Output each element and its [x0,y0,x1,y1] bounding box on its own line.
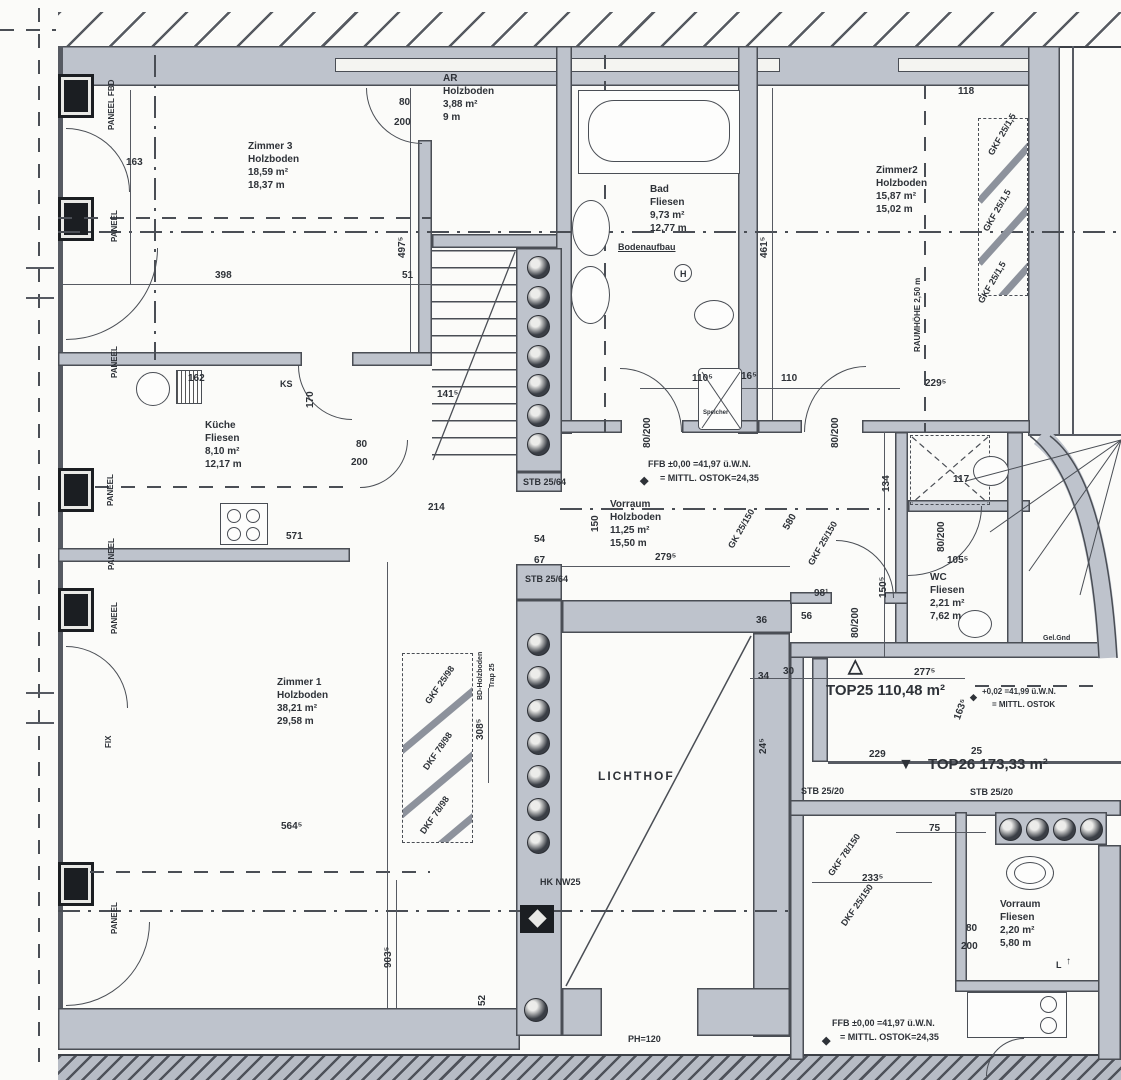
tag-stb2564-b: STB 25/64 [525,574,568,584]
room-label-zimmer2: Zimmer2Holzboden15,87 m²15,02 m [876,164,927,216]
dim-461-5: 461⁵ [760,237,770,258]
dim-134: 134 [882,475,892,492]
dim-170: 170 [306,391,316,408]
facade-pillar [58,74,94,118]
dim-398: 398 [215,271,232,281]
wall-unit-divider [790,655,804,1060]
shaft-circle-lower [527,666,550,689]
wall-wc-left [895,432,908,657]
dim-16-5: 16⁵ [741,372,757,382]
dim-580: 580 [782,513,799,532]
sink-shower-room [973,456,1009,486]
stove-burner [246,509,260,523]
tag-gk25150: GK 25/150 [726,507,756,550]
room-label-line: AR [443,72,494,85]
washing-machine-inner [1014,862,1046,884]
wall-br-kitchen-top [955,980,1121,992]
tag-stb2520-a: STB 25/20 [801,786,844,796]
toilet-bad [694,300,734,330]
wall-zimmer2-bottom [862,420,1030,433]
ann-hk: HK NW25 [540,877,581,887]
room-label-ar: ARHolzboden3,88 m²9 m [443,72,494,124]
ann-trap25: Trap 25 [488,663,498,688]
floor-plan-canvas: 16339851497⁵141⁵162170571118229⁵110⁵16⁵1… [0,0,1121,1080]
lvl-ostok-br: = MITTL. OSTOK=24,35 [840,1032,939,1042]
dim-36: 36 [756,616,767,626]
shaft-circle-lower [527,633,550,656]
room-label-line: 8,10 m² [205,445,242,458]
dim-line [488,688,489,783]
room-label-line: Vorraum [1000,898,1040,911]
room-label-line: Fliesen [1000,911,1040,924]
ann-bd-holzboden: BD-Holzboden [476,652,486,700]
room-label-wc: WCFliesen2,21 m²7,62 m [930,571,964,623]
wall-br-right [1098,845,1121,1060]
door-ar-200: 200 [394,118,411,128]
door-kue-80: 80 [356,440,367,450]
lvl-ffb-mid: FFB ±0,00 =41,97 ü.W.N. [648,459,751,469]
dim-308-5: 308⁵ [476,719,486,740]
wall-br-vertical [955,812,967,988]
door-br-200: 200 [961,942,978,952]
room-label-line: 2,20 m² [1000,924,1040,937]
room-label-line: 11,25 m² [610,524,661,537]
ann-paneel-1: PANEEL [110,210,120,242]
dashline-kueche [95,486,345,488]
room-label-line: 29,58 m [277,715,328,728]
dim-75: 75 [929,824,940,834]
room-label-line: 5,80 m [1000,937,1040,950]
dim-903-5: 903⁵ [384,947,394,968]
shaft-circle-lower [527,732,550,755]
room-label-line: Zimmer 1 [277,676,328,689]
top-boundary-hatch [58,12,1121,48]
dim-229-5: 229⁵ [925,379,946,389]
refline-zimmer1 [387,562,388,1008]
room-label-line: 38,21 m² [277,702,328,715]
dim-line [750,678,965,679]
centerline-zimmer1 [58,910,788,912]
ann-l-arrow: ↑ [1066,957,1071,967]
room-label-line: 7,62 m [930,610,964,623]
dim-56: 56 [801,612,812,622]
tag-gkf25150: GKF 25/150 [806,520,839,567]
wall-zimmer3-bottom [352,352,432,366]
door-arc-facade-4 [66,922,150,1006]
ann-speicher: Speicher [703,408,728,418]
dim-150: 150 [591,515,601,532]
sink-bad-2 [571,266,610,324]
wall-zimmer3-bottom [58,352,302,366]
room-label-line: Fliesen [930,584,964,597]
top-margin-line [0,29,56,31]
dim-163: 163 [126,158,143,168]
ann-gelgnd: Gel.Gnd [1043,634,1070,644]
dim-52: 52 [478,995,488,1006]
margin-tick [26,692,54,694]
stove-burner [246,527,260,541]
room-label-line: 18,59 m² [248,166,299,179]
room-label-line: Bad [650,183,687,196]
lichthof-wall-right [753,633,790,1037]
margin-tick [26,297,54,299]
room-label-line: 12,17 m [205,458,242,471]
facade-pillar [58,862,94,906]
stove-burner [227,509,241,523]
door-arc-facade-2 [66,248,158,340]
dim-214: 214 [428,503,445,513]
lvl-marker-tr: ◆ [970,692,977,702]
room-label-line: Holzboden [248,153,299,166]
stove-burner-br [1040,1017,1057,1034]
room-label-line: Holzboden [277,689,328,702]
room-label-vorraum: VorraumHolzboden11,25 m²15,50 m [610,498,661,550]
room-label-vorraum2: VorraumFliesen2,20 m²5,80 m [1000,898,1040,950]
dim-564-5: 564⁵ [281,822,302,832]
dim-line [884,432,885,657]
door-arc-facade-3 [66,646,128,708]
shaft-circle-upper [527,286,550,309]
ann-paneel-fbd: PANEEL FBD [107,80,117,130]
facade-pillar [58,197,94,241]
shaft-circle-lower [527,798,550,821]
tag-stb2564-a: STB 25/64 [523,477,566,487]
dim-34: 34 [758,672,769,682]
room-label-zimmer1: Zimmer 1Holzboden38,21 m²29,58 m [277,676,328,728]
shaft-circle-bottom-right [1080,818,1103,841]
room-label-line: 3,88 m² [443,98,494,111]
wall-ar-bottom [432,234,560,248]
room-label-line: Holzboden [876,177,927,190]
room-label-kueche: KücheFliesen8,10 m²12,17 m [205,419,242,471]
unit-top25-label: TOP25 110,48 m² [826,686,945,696]
wall-top-layer [898,58,1033,72]
ann-paneel-2: PANEEL [110,346,120,378]
dim-571: 571 [286,532,303,542]
ann-paneel-4: PANEEL [107,538,117,570]
room-label-line: 15,02 m [876,203,927,216]
door-bad: 80/200 [643,417,653,448]
shaft-circle-bottom-right [1026,818,1049,841]
unit-top26-label: TOP26 173,33 m² [928,760,1048,770]
lvl-ostok-tr: = MITTL. OSTOK [992,700,1055,710]
wall-right-outer [1028,46,1060,436]
door-arc-bottom-right [986,1038,1024,1076]
room-label-line: Holzboden [443,85,494,98]
dim-497-5: 497⁵ [398,237,408,258]
dim-54: 54 [534,535,545,545]
shaft-circle-upper [527,256,550,279]
shaft-circle-bottom-right [1053,818,1076,841]
dim-98-1: 98¹ [814,589,828,599]
lvl-ostok-mid: = MITTL. OSTOK=24,35 [660,473,759,483]
dim-line [896,832,986,833]
room-label-line: Zimmer 3 [248,140,299,153]
ann-paneel-6: PANEEL [110,902,120,934]
dim-line [396,880,397,1008]
wall-bad-bottom [556,420,622,433]
dim-277-5: 277⁵ [914,668,935,678]
tag-dkf25150: DKF 25/150 [839,882,875,927]
room-label-line: Küche [205,419,242,432]
lichthof-wall-bottom [697,988,790,1036]
wall-wc-right [1007,432,1023,658]
dim-117: 117 [953,475,969,485]
unit-top25-marker: △ [848,662,863,672]
wall-kueche-bottom [58,548,350,562]
facade-pillar [58,588,94,632]
stair-top-line [1028,434,1121,436]
left-margin-line [38,8,40,1072]
room-label-line: 18,37 m [248,179,299,192]
room-label-line: Zimmer2 [876,164,927,177]
centerline-v-zimmer3 [154,55,156,360]
dim-110-5: 110⁵ [692,374,713,384]
shaft-circle-upper [527,433,550,456]
stove-burner [227,527,241,541]
dim-line [772,88,773,420]
dim-105-5: 105⁵ [947,556,968,566]
tag-stb2520-b: STB 25/20 [970,787,1013,797]
room-label-line: 12,77 m [650,222,687,235]
shaft-circle-upper [527,404,550,427]
wall-right-line [1072,46,1074,436]
shaft-circle-upper [527,345,550,368]
shaft-circle-upper [527,374,550,397]
bathtub [588,100,730,162]
room-label-line: WC [930,571,964,584]
wall-top25-left [812,658,828,762]
facade-pillar [58,468,94,512]
dim-229: 229 [869,750,886,760]
tag-gkf78150: GKF 78/150 [826,832,862,878]
shaft-dark-circle [524,998,548,1022]
lvl-marker-br: ◆ [822,1036,830,1046]
shaft-circle-bottom-right [999,818,1022,841]
room-label-line: 9 m [443,111,494,124]
room-label-line: Holzboden [610,511,661,524]
ann-h-symbol: H [680,269,687,279]
ann-paneel-3: PANEEL [106,474,116,506]
room-label-line: 15,50 m [610,537,661,550]
door-ar-80: 80 [399,98,410,108]
room-label-line: Vorraum [610,498,661,511]
ann-fix: FIX [104,736,114,748]
room-label-zimmer3: Zimmer 3Holzboden18,59 m²18,37 m [248,140,299,192]
lvl-marker-mid: ◆ [640,476,648,486]
door-flur: 80/200 [851,607,861,638]
wall-zimmer2-bottom [758,420,802,433]
stove [220,503,268,545]
bottom-boundary-hatch [58,1054,1121,1080]
dim-118: 118 [958,87,974,97]
dim-163-5: 163⁵ [953,698,970,722]
dim-162: 162 [188,374,205,384]
lvl-ffb-br: FFB ±0,00 =41,97 ü.W.N. [832,1018,935,1028]
stove-burner-br [1040,996,1057,1013]
ann-ks: KS [280,379,293,389]
lvl-plus002: +0,02 =41,99 ü.W.N. [982,687,1056,697]
shaft-circle-lower [527,765,550,788]
stair-treads [432,250,516,462]
shaft-circle-upper [527,315,550,338]
ann-paneel-5: PANEEL [110,602,120,634]
dim-141-5: 141⁵ [437,390,458,400]
wall-zimmer3-right [418,140,432,356]
room-label-line: Fliesen [205,432,242,445]
margin-tick [26,267,54,269]
door-arc-facade-1 [66,128,130,192]
ann-lichthof: LICHTHOF [598,771,675,781]
sink-bad-1 [572,200,610,256]
room-label-bad: BadFliesen9,73 m²12,77 m [650,183,687,235]
dim-110: 110 [781,374,797,384]
door-br-80: 80 [966,924,977,934]
room-label-line: 9,73 m² [650,209,687,222]
unit-top26-marker: ▼ [898,760,914,770]
room-label-line: Fliesen [650,196,687,209]
dim-67: 67 [534,556,545,566]
ann-bodenaufbau: Bodenaufbau [618,242,676,252]
ann-l-mark: L [1056,960,1062,970]
door-wc: 80/200 [937,521,947,552]
wall-bottom-left [58,1008,520,1050]
dashline-zimmer1 [90,871,430,873]
dim-51: 51 [402,271,413,281]
door-kue-200: 200 [351,458,368,468]
dim-150-5: 150⁵ [879,577,889,598]
shaft-circle-lower [527,831,550,854]
lichthof-wall-bottom [562,988,602,1036]
ann-raumhoehe: RAUMHÖHE 2,50 m [913,278,923,352]
door-arc-zimmer3 [366,88,422,144]
dim-24-5: 24⁵ [759,738,769,754]
dim-30: 30 [783,667,794,677]
door-z2: 80/200 [831,417,841,448]
margin-tick [26,722,54,724]
ann-ph120: PH=120 [628,1034,661,1044]
kitchen-sink [136,372,170,406]
room-label-line: 2,21 m² [930,597,964,610]
wall-mid-horizontal [790,642,1102,658]
shaft-circle-lower [527,699,550,722]
room-label-line: 15,87 m² [876,190,927,203]
dim-line [562,566,790,567]
dim-279-5: 279⁵ [655,553,676,563]
